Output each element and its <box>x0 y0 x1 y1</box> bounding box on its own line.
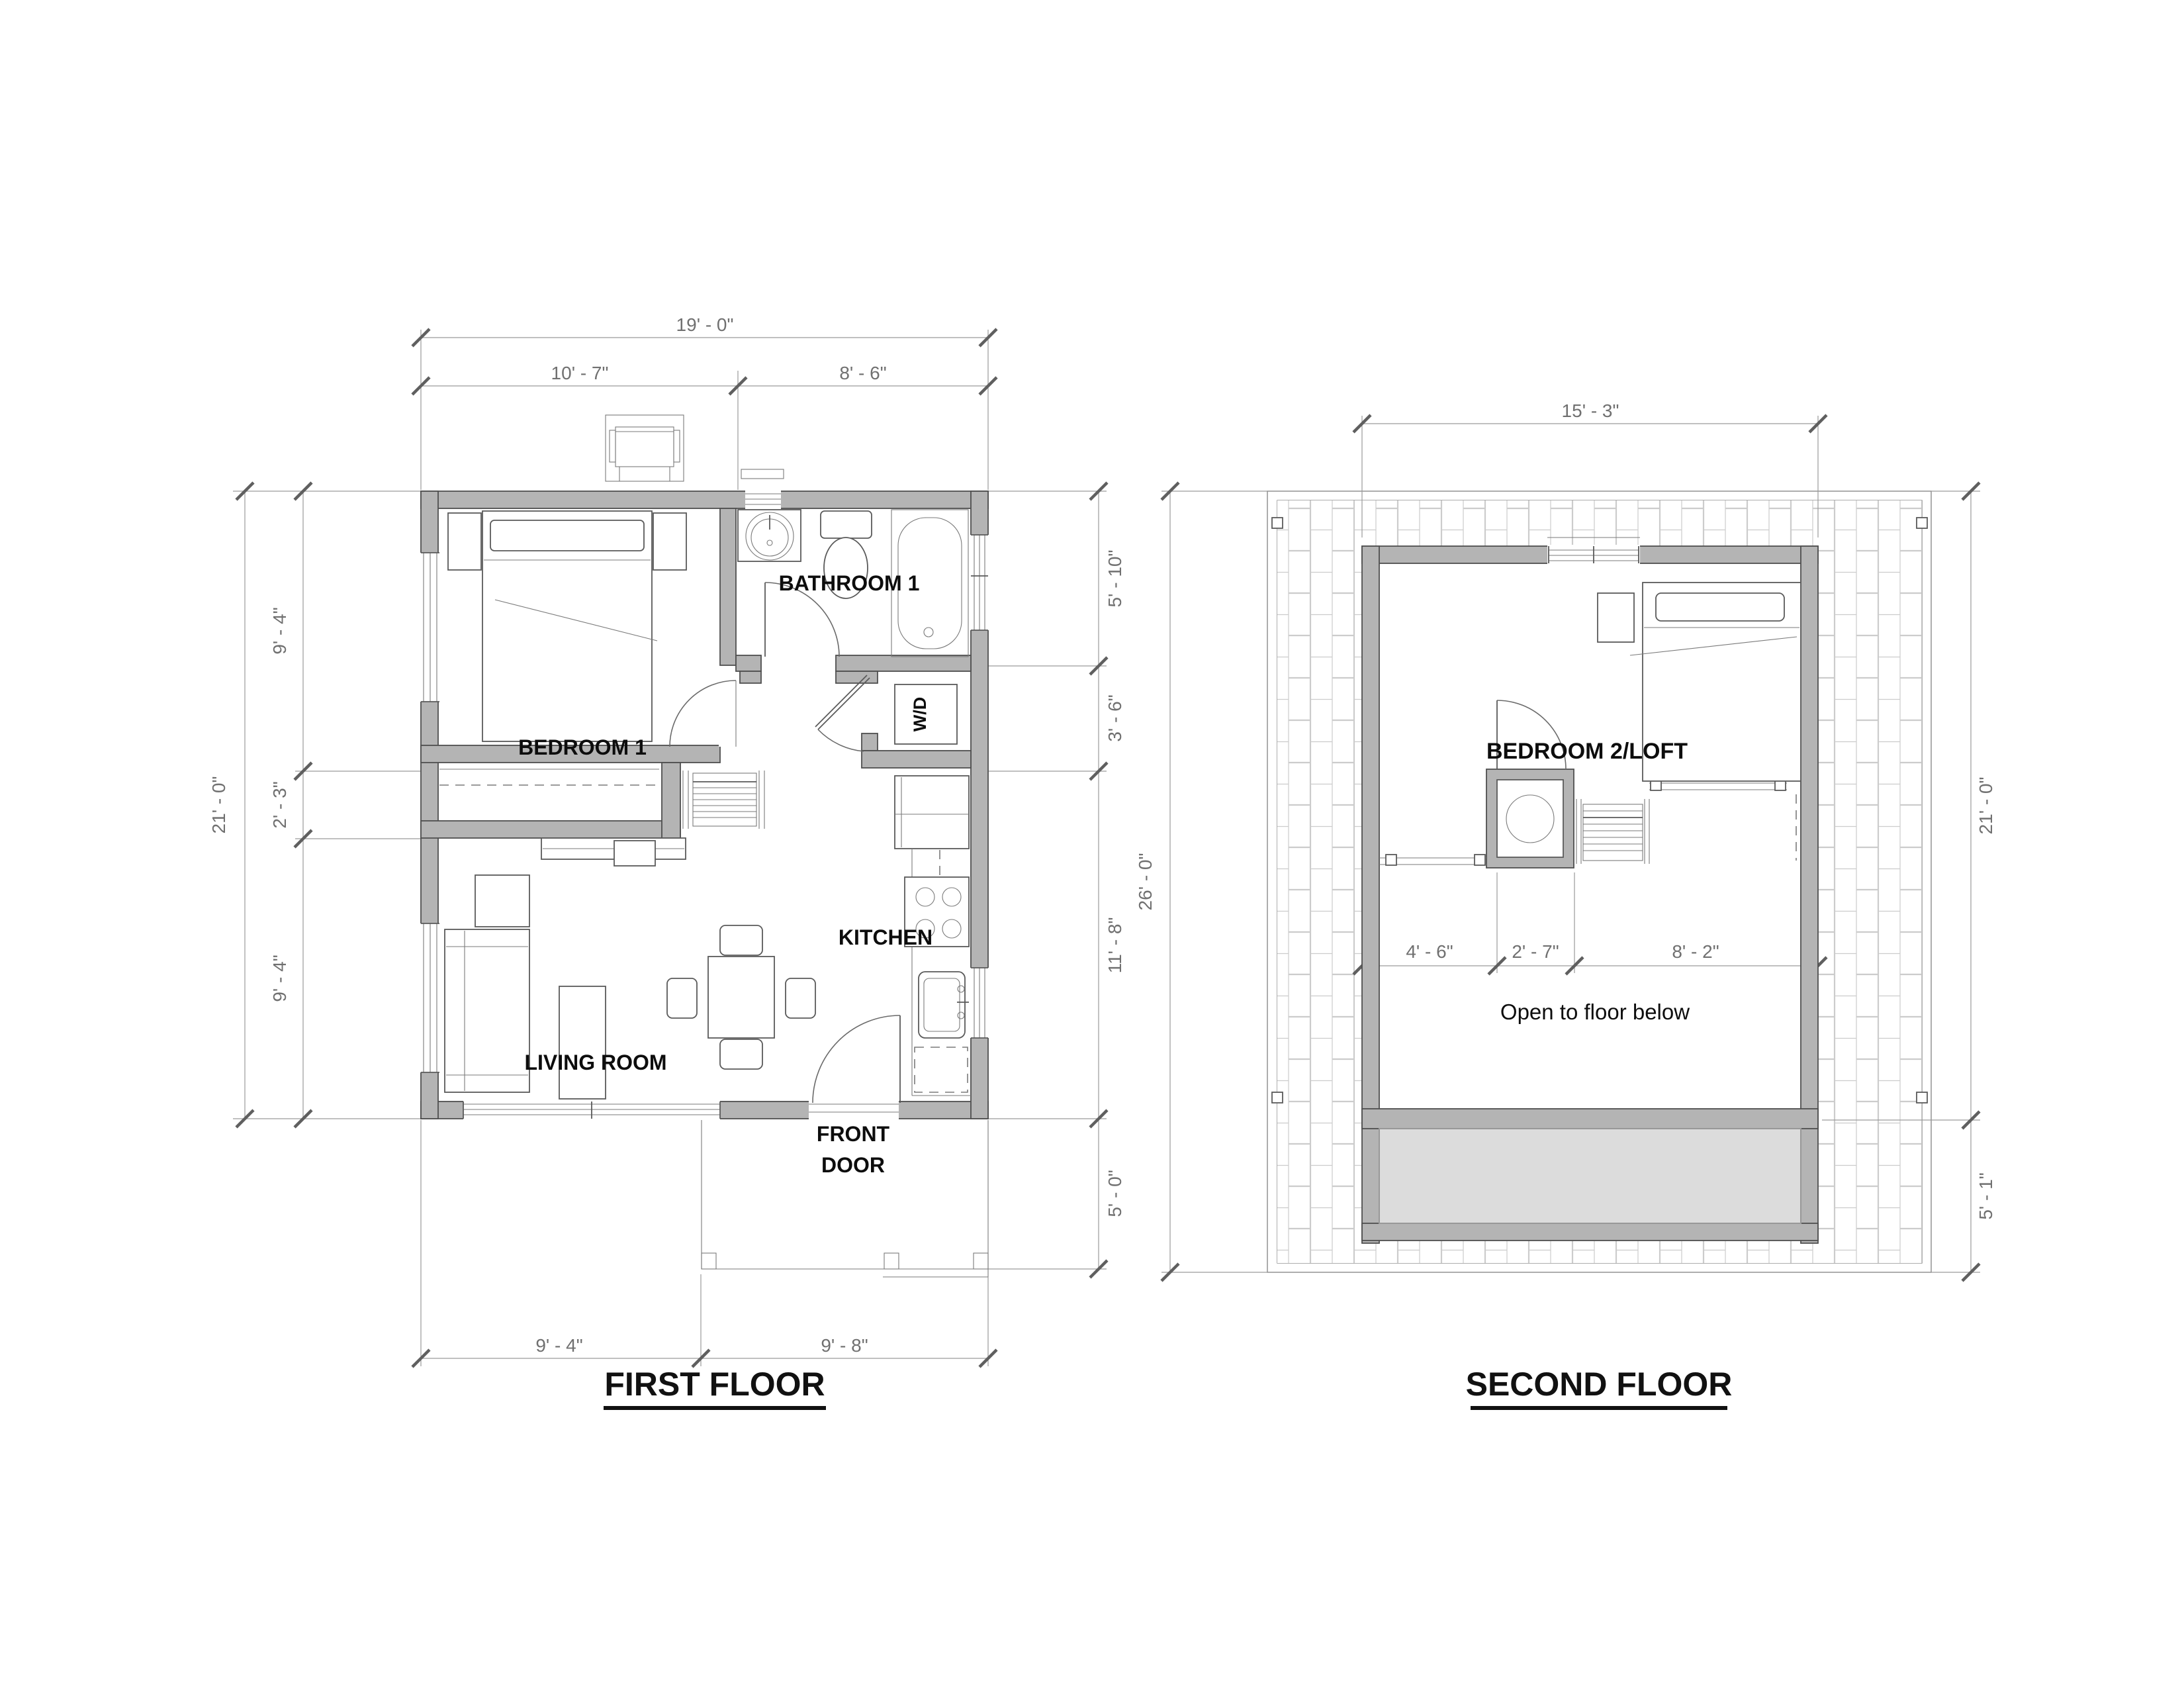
dim-right-upper: 21' - 0" <box>1976 777 1996 835</box>
floor-plan-sheet: 19' - 0" 10' - 7" 8' - 6" 21' - 0" 9' - … <box>0 0 2184 1688</box>
label-bathroom1: BATHROOM 1 <box>779 571 920 595</box>
stairs-second-floor <box>1576 799 1649 864</box>
first-floor-plan: 19' - 0" 10' - 7" 8' - 6" 21' - 0" 9' - … <box>208 314 1125 1367</box>
label-bedroom1: BEDROOM 1 <box>518 735 647 759</box>
dim-mid-right: 8' - 2" <box>1672 941 1719 962</box>
second-floor-plan: 15' - 3" 26' - 0" 21' - 0" 5' - 1" 4' - … <box>1135 400 1996 1281</box>
dim-left-lower: 9' - 4" <box>269 955 290 1002</box>
dim-top-left: 10' - 7" <box>551 363 609 383</box>
label-open-below: Open to floor below <box>1500 1000 1690 1024</box>
bedroom-closet <box>439 769 659 785</box>
title-first-floor: FIRST FLOOR <box>604 1366 825 1403</box>
dim-right-kitchen: 11' - 8" <box>1105 917 1125 974</box>
loft-railings <box>1379 780 1796 865</box>
hvac-unit <box>606 415 684 481</box>
bedroom1-furniture <box>448 511 686 741</box>
dim-overall-depth: 21' - 0" <box>208 776 229 834</box>
plan-drawing: 19' - 0" 10' - 7" 8' - 6" 21' - 0" 9' - … <box>0 0 2184 1688</box>
label-washer-dryer: W/D <box>910 697 930 731</box>
dim-top-width: 15' - 3" <box>1562 400 1619 421</box>
dim-bottom-left: 9' - 4" <box>535 1335 582 1356</box>
dim-right-porch: 5' - 0" <box>1105 1170 1125 1217</box>
sheet-titles: FIRST FLOOR SECOND FLOOR <box>604 1366 1732 1410</box>
dim-top-right: 8' - 6" <box>839 363 886 383</box>
dim-left-upper: 9' - 4" <box>269 607 290 654</box>
label-kitchen: KITCHEN <box>839 925 933 949</box>
roof-below-area <box>1379 1129 1801 1223</box>
stairs-first-floor <box>683 771 764 829</box>
label-bedroom2: BEDROOM 2/LOFT <box>1486 739 1688 764</box>
dim-right-lower: 5' - 1" <box>1976 1172 1996 1219</box>
label-living-room: LIVING ROOM <box>524 1051 666 1074</box>
dim-right-utility: 3' - 6" <box>1105 694 1125 741</box>
dim-right-bath: 5' - 10" <box>1105 550 1125 608</box>
dim-overall-width: 19' - 0" <box>676 314 734 335</box>
dim-mid-center: 2' - 7" <box>1512 941 1559 962</box>
label-front-door-2: DOOR <box>821 1153 885 1177</box>
label-front-door-1: FRONT <box>817 1122 890 1146</box>
dim-left-middle: 2' - 3" <box>269 781 290 828</box>
dim-left-overall: 26' - 0" <box>1135 853 1156 911</box>
title-first-underline <box>604 1406 826 1410</box>
dim-mid-left: 4' - 6" <box>1406 941 1453 962</box>
title-second-floor: SECOND FLOOR <box>1466 1366 1733 1403</box>
dim-bottom-right: 9' - 8" <box>821 1335 868 1356</box>
mechanical-chase <box>1486 700 1574 868</box>
title-second-underline <box>1471 1406 1727 1410</box>
